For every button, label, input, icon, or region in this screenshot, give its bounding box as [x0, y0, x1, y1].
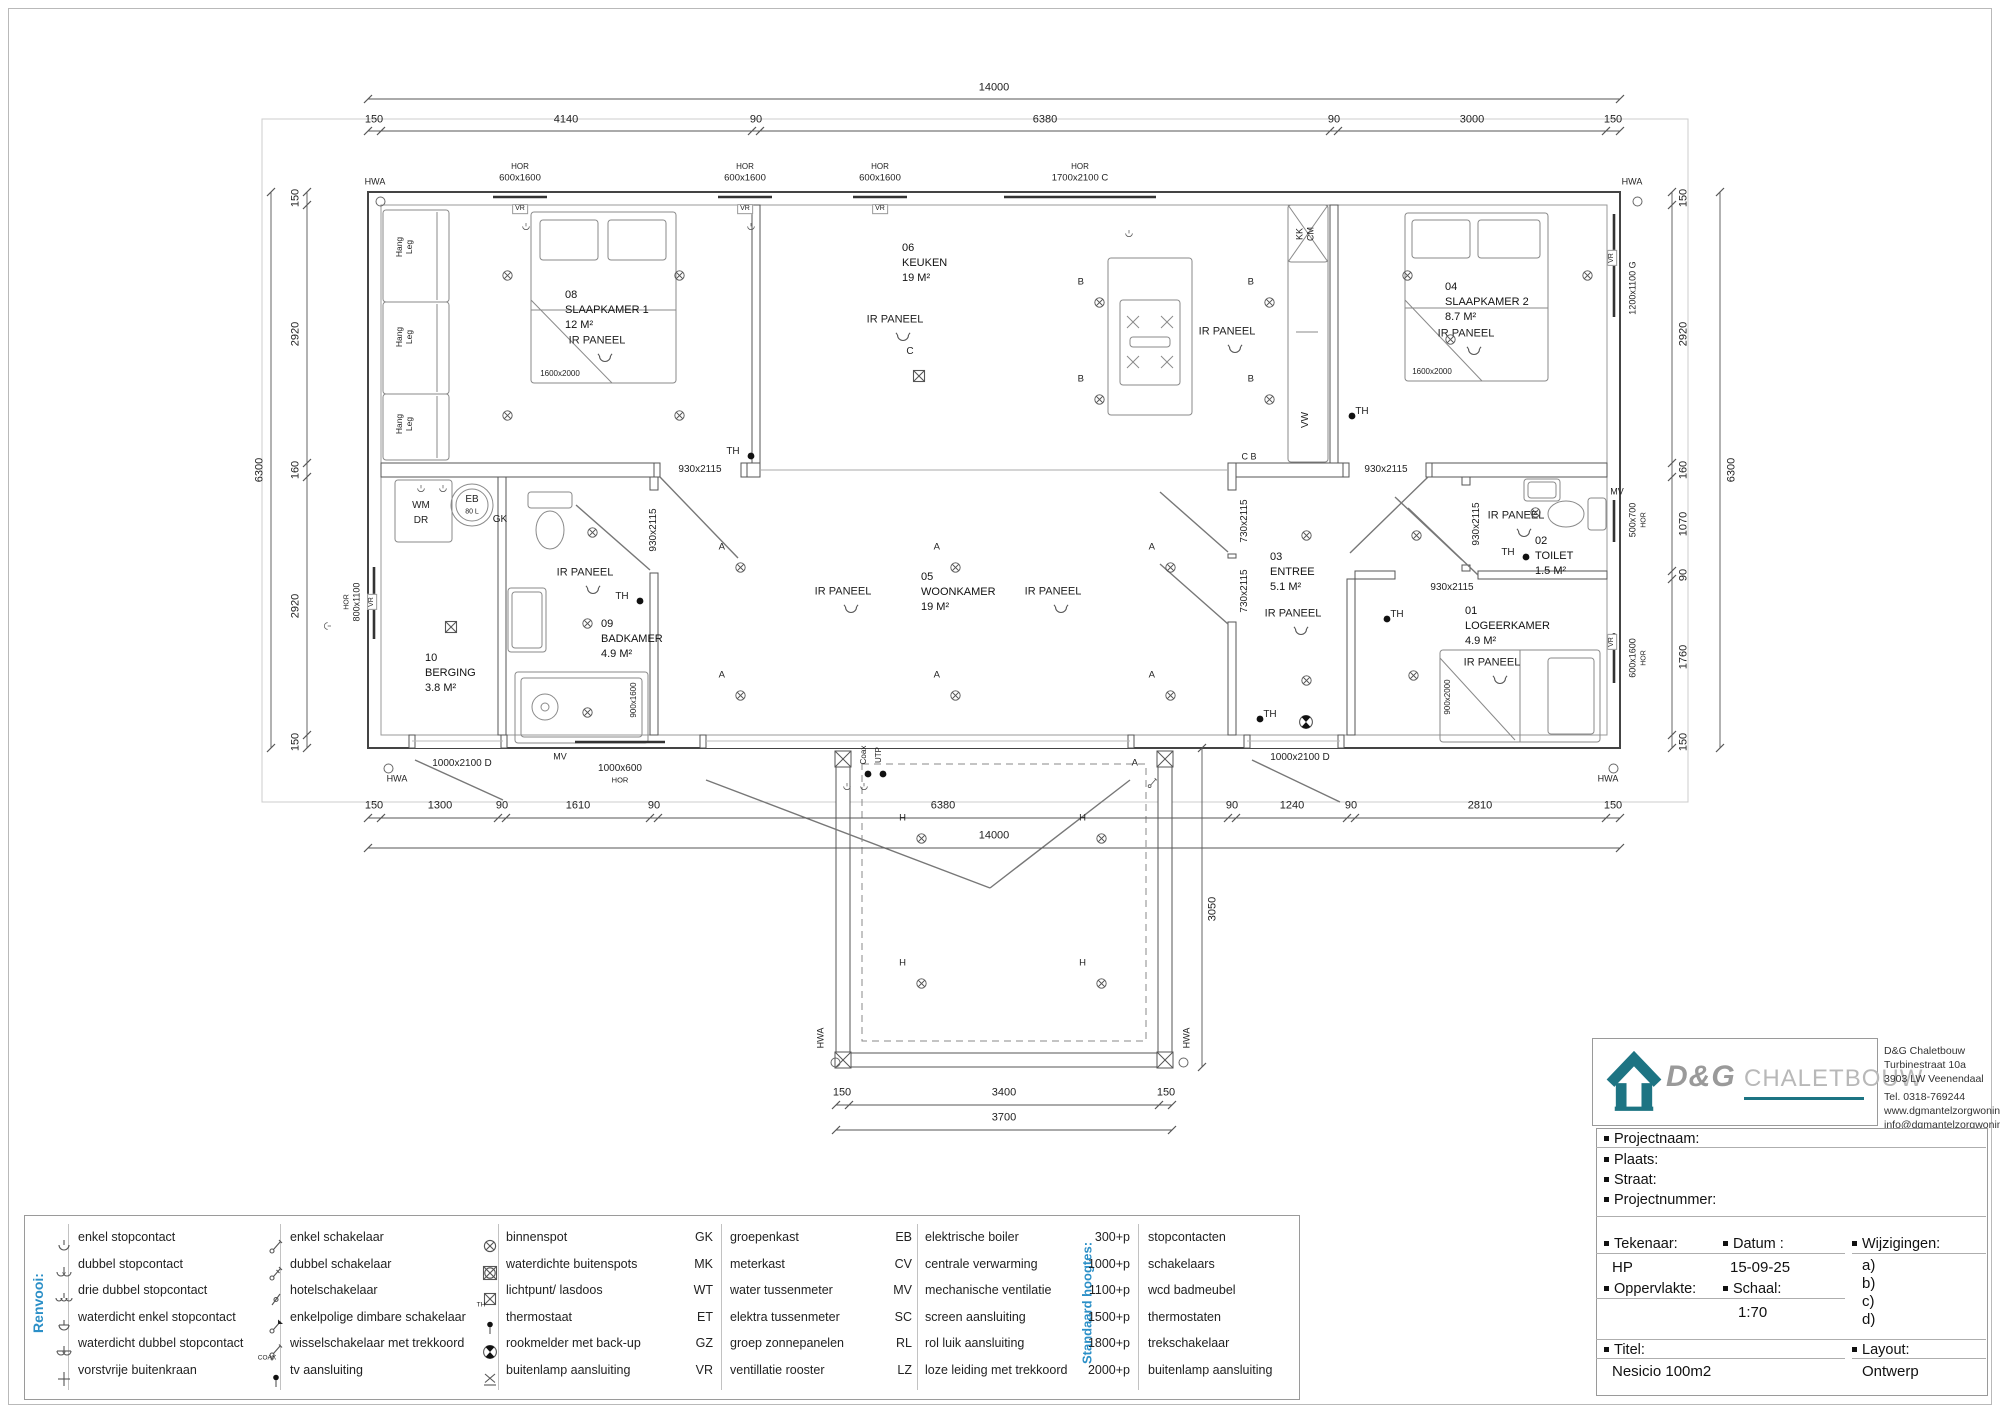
- plan-annotation: C: [906, 347, 913, 357]
- tb-divider: [1596, 1147, 1986, 1148]
- lamp-group-letter: H: [1079, 813, 1086, 823]
- plan-annotation: 1200x1100 G: [1629, 261, 1638, 314]
- legend-item-label: binnenspot: [506, 1230, 567, 1244]
- legend-item-label: ventillatie rooster: [730, 1363, 825, 1377]
- legend-abbr: RL: [896, 1336, 912, 1350]
- room-number: 08: [565, 288, 649, 303]
- plan-annotation: 90: [1226, 801, 1238, 812]
- plan-annotation: 3050: [1208, 897, 1219, 921]
- legend-height: 1800+p: [1088, 1336, 1130, 1350]
- title-block: [1596, 1128, 1988, 1396]
- room-number: 06: [902, 241, 947, 256]
- tb-divider: [1596, 1358, 1845, 1359]
- plan-annotation: HWA: [1622, 178, 1643, 187]
- plan-annotation: HWA: [817, 1028, 826, 1049]
- plan-annotation: 1700x2100 C: [1052, 173, 1109, 183]
- legend-item-label: wisselschakelaar met trekkoord: [290, 1336, 464, 1350]
- room-number: 01: [1465, 604, 1550, 619]
- legend-abbr: VR: [696, 1363, 713, 1377]
- plan-annotation: TH: [1263, 710, 1276, 720]
- plan-annotation: WM: [412, 501, 430, 511]
- room-name: TOILET: [1535, 549, 1573, 564]
- plan-annotation: TH: [615, 592, 628, 602]
- room-label-entree: 03ENTREE5.1 M²: [1270, 550, 1315, 595]
- plan-annotation: 1300: [428, 801, 452, 812]
- legend-height: 1000+p: [1088, 1257, 1130, 1271]
- plan-annotation: HWA: [365, 178, 386, 187]
- wijziging-d: d): [1862, 1311, 1875, 1328]
- plan-annotation: 90: [750, 115, 762, 126]
- plan-annotation: HOR: [1071, 163, 1089, 171]
- legend-item-label: water tussenmeter: [730, 1283, 833, 1297]
- brand-underline: [1744, 1097, 1864, 1100]
- lamp-group-letter: A: [719, 670, 725, 680]
- room-name: KEUKEN: [902, 256, 947, 271]
- plan-annotation: 2920: [291, 322, 302, 346]
- company-street: Turbinestraat 10a: [1884, 1060, 1966, 1071]
- plan-annotation: 6300: [255, 458, 266, 482]
- architectural-drawing-sheet: 1400015041409063809030001501501300901610…: [0, 0, 2000, 1413]
- legend-symbol-caption: COAX: [258, 1356, 276, 1363]
- plan-annotation: IR PANEEL: [1464, 658, 1521, 669]
- plan-annotation: Leg: [405, 417, 414, 431]
- room-name: WOONKAMER: [921, 585, 996, 600]
- plan-annotation: HOR: [1641, 512, 1648, 528]
- plan-annotation: Hang: [395, 237, 404, 257]
- plan-annotation: VR: [512, 204, 528, 214]
- plan-annotation: 90: [648, 801, 660, 812]
- room-number: 02: [1535, 534, 1573, 549]
- plan-annotation: TH: [1501, 548, 1514, 558]
- plan-annotation: C B: [1241, 453, 1256, 462]
- legend-item-label: dubbel schakelaar: [290, 1257, 391, 1271]
- wijziging-b: b): [1862, 1275, 1875, 1292]
- legend-symbol-caption: TH: [477, 1302, 486, 1309]
- legend-item-label: wcd badmeubel: [1148, 1283, 1236, 1297]
- legend-height: 1100+p: [1089, 1283, 1130, 1297]
- plan-annotation: 90: [1328, 115, 1340, 126]
- lamp-group-letter: A: [1132, 758, 1138, 768]
- plan-annotation: IR PANEEL: [815, 587, 872, 598]
- plan-annotation: VR: [737, 204, 753, 214]
- plan-annotation: IR PANEEL: [557, 568, 614, 579]
- plan-annotation: 500x700: [1629, 503, 1638, 538]
- legend-item-label: waterdichte buitenspots: [506, 1257, 637, 1271]
- lamp-group-letter: A: [719, 542, 725, 552]
- legend-item-label: lichtpunt/ lasdoos: [506, 1283, 603, 1297]
- plan-annotation: 14000: [979, 83, 1010, 94]
- legend-divider: [721, 1224, 722, 1390]
- plan-annotation: CM: [1307, 227, 1316, 241]
- plan-annotation: VW: [1301, 412, 1311, 428]
- plan-annotation: IR PANEEL: [1265, 609, 1322, 620]
- legend-item-label: waterdicht dubbel stopcontact: [78, 1336, 243, 1350]
- legend-abbr: CV: [895, 1257, 912, 1271]
- legend-item-label: groepenkast: [730, 1230, 799, 1244]
- room-area: 4.9 M²: [601, 647, 663, 662]
- legend-item-label: mechanische ventilatie: [925, 1283, 1051, 1297]
- plan-annotation: 600x1600: [1629, 638, 1638, 678]
- plan-annotation: 90: [1679, 569, 1690, 581]
- tb-divider: [1596, 1253, 1845, 1254]
- plan-annotation: 800x1100: [353, 583, 362, 622]
- legend-abbr: GK: [695, 1230, 713, 1244]
- plan-annotation: 150: [291, 189, 302, 207]
- projectnaam-label: Projectnaam:: [1614, 1131, 1699, 1147]
- company-city: 3903 LW Veenendaal: [1884, 1074, 1984, 1085]
- plan-annotation: 600x1600: [859, 173, 901, 183]
- tekenaar-label: Tekenaar:: [1614, 1236, 1678, 1252]
- plan-annotation: HOR: [736, 163, 754, 171]
- legend-divider: [917, 1224, 918, 1390]
- legend-item-label: drie dubbel stopcontact: [78, 1283, 207, 1297]
- legend-divider: [1138, 1224, 1139, 1390]
- plan-annotation: MV: [553, 753, 567, 762]
- tb-divider: [1596, 1216, 1986, 1217]
- wijziging-c: c): [1862, 1293, 1875, 1310]
- plan-annotation: 930x2115: [1472, 500, 1482, 547]
- room-label-toilet: 02TOILET1.5 M²: [1535, 534, 1573, 579]
- plan-annotation: 150: [833, 1088, 851, 1099]
- room-number: 04: [1445, 280, 1529, 295]
- plan-annotation: HOR: [511, 163, 529, 171]
- room-area: 19 M²: [902, 271, 947, 286]
- legend-height: 300+p: [1095, 1230, 1130, 1244]
- datum-label: Datum :: [1733, 1236, 1784, 1252]
- plan-annotation: VR: [1607, 634, 1617, 650]
- plan-annotation: 150: [365, 115, 383, 126]
- lamp-group-letter: H: [1079, 958, 1086, 968]
- schaal-value: 1:70: [1738, 1304, 1767, 1321]
- plan-annotation: 930x2115: [649, 506, 659, 553]
- legend-item-label: buitenlamp aansluiting: [1148, 1363, 1272, 1377]
- plan-annotation: 2920: [1679, 322, 1690, 346]
- datum-value: 15-09-25: [1730, 1259, 1790, 1276]
- plan-annotation: 2920: [291, 594, 302, 618]
- legend-height: 2000+p: [1088, 1363, 1130, 1377]
- room-number: 03: [1270, 550, 1315, 565]
- plan-annotation: DR: [414, 516, 428, 526]
- plan-annotation: 6300: [1727, 458, 1738, 482]
- tb-divider: [1852, 1358, 1986, 1359]
- legend-title: Renvooi:: [30, 1273, 46, 1333]
- room-area: 5.1 M²: [1270, 580, 1315, 595]
- plan-annotation: TH: [726, 447, 739, 457]
- plan-annotation: Hang: [395, 327, 404, 347]
- titel-value: Nesicio 100m2: [1612, 1363, 1711, 1380]
- tekenaar-value: HP: [1612, 1259, 1633, 1276]
- plan-annotation: 1000x600: [598, 764, 642, 774]
- lamp-group-letter: A: [1149, 670, 1155, 680]
- plaats-label: Plaats:: [1614, 1152, 1658, 1168]
- plan-annotation: HOR: [1641, 650, 1648, 666]
- plan-annotation: IR PANEEL: [1025, 587, 1082, 598]
- tb-divider: [1852, 1253, 1986, 1254]
- legend-item-label: dubbel stopcontact: [78, 1257, 183, 1271]
- plan-annotation: 150: [1604, 801, 1622, 812]
- legend-item-label: groep zonnepanelen: [730, 1336, 844, 1350]
- plan-annotation: 4140: [554, 115, 578, 126]
- plan-annotation: 730x2115: [1240, 497, 1250, 544]
- plan-annotation: 1610: [566, 801, 590, 812]
- plan-annotation: 930x2115: [676, 465, 723, 475]
- legend-abbr: LZ: [897, 1363, 912, 1377]
- company-name: D&G Chaletbouw: [1884, 1046, 1965, 1057]
- plan-annotation: TH: [1390, 610, 1403, 620]
- plan-annotation: 90: [1345, 801, 1357, 812]
- legend-item-label: meterkast: [730, 1257, 785, 1271]
- plan-annotation: 150: [291, 733, 302, 751]
- room-area: 1.5 M²: [1535, 564, 1573, 579]
- legend-item-label: tv aansluiting: [290, 1363, 363, 1377]
- room-name: BADKAMER: [601, 632, 663, 647]
- plan-annotation: 150: [1679, 189, 1690, 207]
- plan-annotation: 600x1600: [499, 173, 541, 183]
- plan-annotation: HOR: [344, 594, 351, 610]
- room-label-logeerkamer: 01LOGEERKAMER4.9 M²: [1465, 604, 1550, 649]
- plan-annotation: 150: [1604, 115, 1622, 126]
- lamp-group-letter: B: [1248, 277, 1254, 287]
- lamp-group-letter: A: [1149, 542, 1155, 552]
- room-label-badkamer: 09BADKAMER4.9 M²: [601, 617, 663, 662]
- legend-item-label: thermostaat: [506, 1310, 572, 1324]
- legend-item-label: stopcontacten: [1148, 1230, 1226, 1244]
- room-name: SLAAPKAMER 2: [1445, 295, 1529, 310]
- legend-item-label: enkel stopcontact: [78, 1230, 175, 1244]
- plan-annotation: 150: [365, 801, 383, 812]
- legend-item-label: screen aansluiting: [925, 1310, 1026, 1324]
- legend-abbr: GZ: [696, 1336, 713, 1350]
- plan-annotation: 900x2000: [1444, 679, 1452, 714]
- plan-annotation: HOR: [871, 163, 889, 171]
- titel-label: Titel:: [1614, 1342, 1645, 1358]
- legend-item-label: enkelpolige dimbare schakelaar: [290, 1310, 466, 1324]
- company-phone: Tel. 0318-769244: [1884, 1092, 1965, 1103]
- legend-item-label: enkel schakelaar: [290, 1230, 384, 1244]
- plan-annotation: HWA: [1183, 1028, 1192, 1049]
- plan-annotation: 930x2115: [1362, 465, 1409, 475]
- plan-annotation: Hang: [395, 414, 404, 434]
- plan-annotation: EB: [465, 495, 478, 505]
- plan-annotation: 900x1600: [630, 682, 638, 717]
- room-label-berging: 10BERGING3.8 M²: [425, 651, 476, 696]
- plan-annotation: GK: [493, 515, 507, 525]
- plan-annotation: IR PANEEL: [1199, 327, 1256, 338]
- plan-annotation: 160: [291, 461, 302, 479]
- plan-annotation: TH: [1355, 407, 1368, 417]
- plan-annotation: 80 L: [465, 509, 479, 516]
- plan-annotation: KK: [1296, 228, 1305, 240]
- plan-annotation: Leg: [405, 330, 414, 344]
- legend-item-label: elektra tussenmeter: [730, 1310, 840, 1324]
- room-area: 19 M²: [921, 600, 996, 615]
- plan-annotation: 3700: [992, 1113, 1016, 1124]
- room-area: 12 M²: [565, 318, 649, 333]
- plan-annotation: 730x2115: [1240, 567, 1250, 614]
- room-name: ENTREE: [1270, 565, 1315, 580]
- straat-label: Straat:: [1614, 1172, 1657, 1188]
- legend-abbr: ET: [697, 1310, 713, 1324]
- plan-annotation: 1240: [1280, 801, 1304, 812]
- plan-annotation: MV: [1610, 488, 1624, 497]
- wijzigingen-label: Wijzigingen:: [1862, 1236, 1940, 1252]
- legend-item-label: buitenlamp aansluiting: [506, 1363, 630, 1377]
- layout-value: Ontwerp: [1862, 1363, 1919, 1380]
- plan-annotation: 1070: [1679, 512, 1690, 536]
- lamp-group-letter: B: [1078, 374, 1084, 384]
- tb-divider: [1596, 1339, 1986, 1340]
- room-area: 8.7 M²: [1445, 310, 1529, 325]
- plan-annotation: 2810: [1468, 801, 1492, 812]
- plan-annotation: 1600x2000: [540, 370, 580, 378]
- legend-abbr: EB: [895, 1230, 912, 1244]
- plan-annotation: IR PANEEL: [867, 315, 924, 326]
- plan-annotation: 600x1600: [724, 173, 766, 183]
- legend-item-label: loze leiding met trekkoord: [925, 1363, 1067, 1377]
- room-name: LOGEERKAMER: [1465, 619, 1550, 634]
- legend-item-label: thermostaten: [1148, 1310, 1221, 1324]
- lamp-group-letter: H: [899, 813, 906, 823]
- legend-height: 1500+p: [1088, 1310, 1130, 1324]
- room-name: SLAAPKAMER 1: [565, 303, 649, 318]
- plan-annotation: HWA: [1598, 775, 1619, 784]
- tb-divider: [1596, 1298, 1845, 1299]
- legend-item-label: rookmelder met back-up: [506, 1336, 641, 1350]
- oppervlakte-label: Oppervlakte:: [1614, 1281, 1696, 1297]
- plan-annotation: 3000: [1460, 115, 1484, 126]
- room-label-keuken: 06KEUKEN19 M²: [902, 241, 947, 286]
- room-label-woonkamer: 05WOONKAMER19 M²: [921, 570, 996, 615]
- plan-annotation: 90: [496, 801, 508, 812]
- plan-annotation: HOR: [612, 776, 629, 784]
- plan-annotation: 150: [1679, 733, 1690, 751]
- lamp-group-letter: B: [1248, 374, 1254, 384]
- legend-item-label: waterdicht enkel stopcontact: [78, 1310, 236, 1324]
- plan-annotation: UTP: [875, 747, 883, 763]
- plan-annotation: 6380: [931, 801, 955, 812]
- lamp-group-letter: H: [899, 958, 906, 968]
- plan-annotation: Coax: [860, 746, 868, 765]
- legend-abbr: MK: [694, 1257, 713, 1271]
- lamp-group-letter: A: [934, 670, 940, 680]
- plan-annotation: VR: [1607, 250, 1617, 266]
- company-website: www.dgmantelzorgwoningen.nl: [1884, 1106, 2000, 1117]
- plan-annotation: IR PANEEL: [569, 336, 626, 347]
- room-number: 09: [601, 617, 663, 632]
- room-area: 4.9 M²: [1465, 634, 1550, 649]
- plan-annotation: VR: [367, 594, 377, 610]
- lamp-group-letter: B: [1078, 277, 1084, 287]
- projectnummer-label: Projectnummer:: [1614, 1192, 1716, 1208]
- legend-item-label: vorstvrije buitenkraan: [78, 1363, 197, 1377]
- legend-item-label: centrale verwarming: [925, 1257, 1038, 1271]
- plan-annotation: 1000x2100 D: [432, 759, 492, 769]
- room-area: 3.8 M²: [425, 681, 476, 696]
- layout-label: Layout:: [1862, 1342, 1910, 1358]
- lamp-group-letter: A: [934, 542, 940, 552]
- legend-abbr: SC: [895, 1310, 912, 1324]
- legend-item-label: elektrische boiler: [925, 1230, 1019, 1244]
- plan-annotation: VR: [872, 204, 888, 214]
- wijziging-a: a): [1862, 1257, 1875, 1274]
- plan-annotation: 14000: [979, 831, 1010, 842]
- legend-abbr: WT: [694, 1283, 713, 1297]
- legend-item-label: rol luik aansluiting: [925, 1336, 1024, 1350]
- schaal-label: Schaal:: [1733, 1281, 1781, 1297]
- plan-annotation: 150: [1157, 1088, 1175, 1099]
- plan-annotation: Leg: [405, 240, 414, 254]
- plan-annotation: 1000x2100 D: [1270, 753, 1330, 763]
- plan-annotation: 3400: [992, 1088, 1016, 1099]
- room-label-slaapkamer-1: 08SLAAPKAMER 112 M²: [565, 288, 649, 333]
- plan-annotation: 1600x2000: [1412, 368, 1452, 376]
- legend-item-label: trekschakelaar: [1148, 1336, 1229, 1350]
- plan-annotation: 1760: [1679, 645, 1690, 669]
- room-name: BERGING: [425, 666, 476, 681]
- plan-annotation: 160: [1679, 461, 1690, 479]
- legend-abbr: MV: [893, 1283, 912, 1297]
- plan-annotation: 6380: [1033, 115, 1057, 126]
- room-number: 10: [425, 651, 476, 666]
- dg-house-logo-icon: [1604, 1050, 1664, 1112]
- brand-dg: D&G: [1666, 1060, 1736, 1094]
- room-label-slaapkamer-2: 04SLAAPKAMER 28.7 M²: [1445, 280, 1529, 325]
- plan-annotation: 930x2115: [1428, 583, 1475, 593]
- legend-item-label: hotelschakelaar: [290, 1283, 378, 1297]
- plan-annotation: HWA: [387, 775, 408, 784]
- legend-item-label: schakelaars: [1148, 1257, 1215, 1271]
